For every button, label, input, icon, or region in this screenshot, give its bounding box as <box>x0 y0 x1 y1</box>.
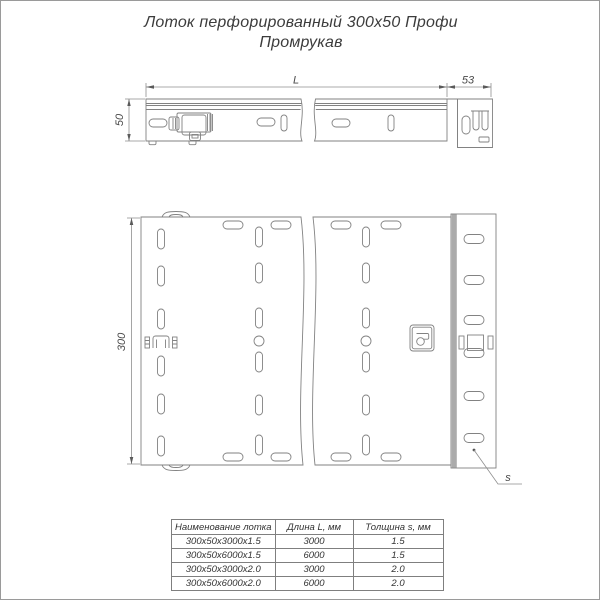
dimension-300-label: 300 <box>116 332 128 351</box>
cell-length: 3000 <box>275 563 353 577</box>
dimension-width: 300 <box>116 218 140 464</box>
table-row: 300x50x3000x1.5 3000 1.5 <box>172 535 444 549</box>
table-row: 300x50x6000x1.5 6000 1.5 <box>172 549 444 563</box>
col-header-name: Наименование лотка <box>172 520 276 535</box>
cell-length: 6000 <box>275 549 353 563</box>
dimension-end-length: 53 <box>447 75 491 89</box>
spec-table-header-row: Наименование лотка Длина L, мм Толщина s… <box>172 520 444 535</box>
plan-view: 300 s <box>116 212 522 485</box>
cell-length: 3000 <box>275 535 353 549</box>
dimension-s-label: s <box>505 472 511 484</box>
table-row: 300x50x6000x2.0 6000 2.0 <box>172 577 444 591</box>
cell-thickness: 2.0 <box>353 577 443 591</box>
edge-tab-bottom <box>162 465 190 471</box>
col-header-thickness: Толщина s, мм <box>353 520 443 535</box>
side-view: L 53 50 <box>114 75 493 148</box>
col-header-length: Длина L, мм <box>275 520 353 535</box>
side-view-connector <box>447 99 493 148</box>
cell-length: 6000 <box>275 577 353 591</box>
dimension-50-label: 50 <box>114 113 126 126</box>
plan-view-connector <box>451 214 496 468</box>
dimension-L-label: L <box>293 75 299 87</box>
spec-table: Наименование лотка Длина L, мм Толщина s… <box>171 519 444 591</box>
cell-thickness: 1.5 <box>353 535 443 549</box>
cell-name: 300x50x6000x1.5 <box>172 549 276 563</box>
table-row: 300x50x3000x2.0 3000 2.0 <box>172 563 444 577</box>
dimension-53-label: 53 <box>462 75 475 87</box>
cell-name: 300x50x6000x2.0 <box>172 577 276 591</box>
cell-thickness: 2.0 <box>353 563 443 577</box>
drawing-sheet: Лоток перфорированный 300x50 Профи Промр… <box>0 0 600 600</box>
dimension-height: 50 <box>114 99 145 141</box>
edge-tab-top <box>162 212 190 218</box>
dimension-length: L <box>146 75 491 98</box>
cell-name: 300x50x3000x1.5 <box>172 535 276 549</box>
cell-thickness: 1.5 <box>353 549 443 563</box>
technical-drawing: L 53 50 <box>1 1 600 600</box>
cell-name: 300x50x3000x2.0 <box>172 563 276 577</box>
